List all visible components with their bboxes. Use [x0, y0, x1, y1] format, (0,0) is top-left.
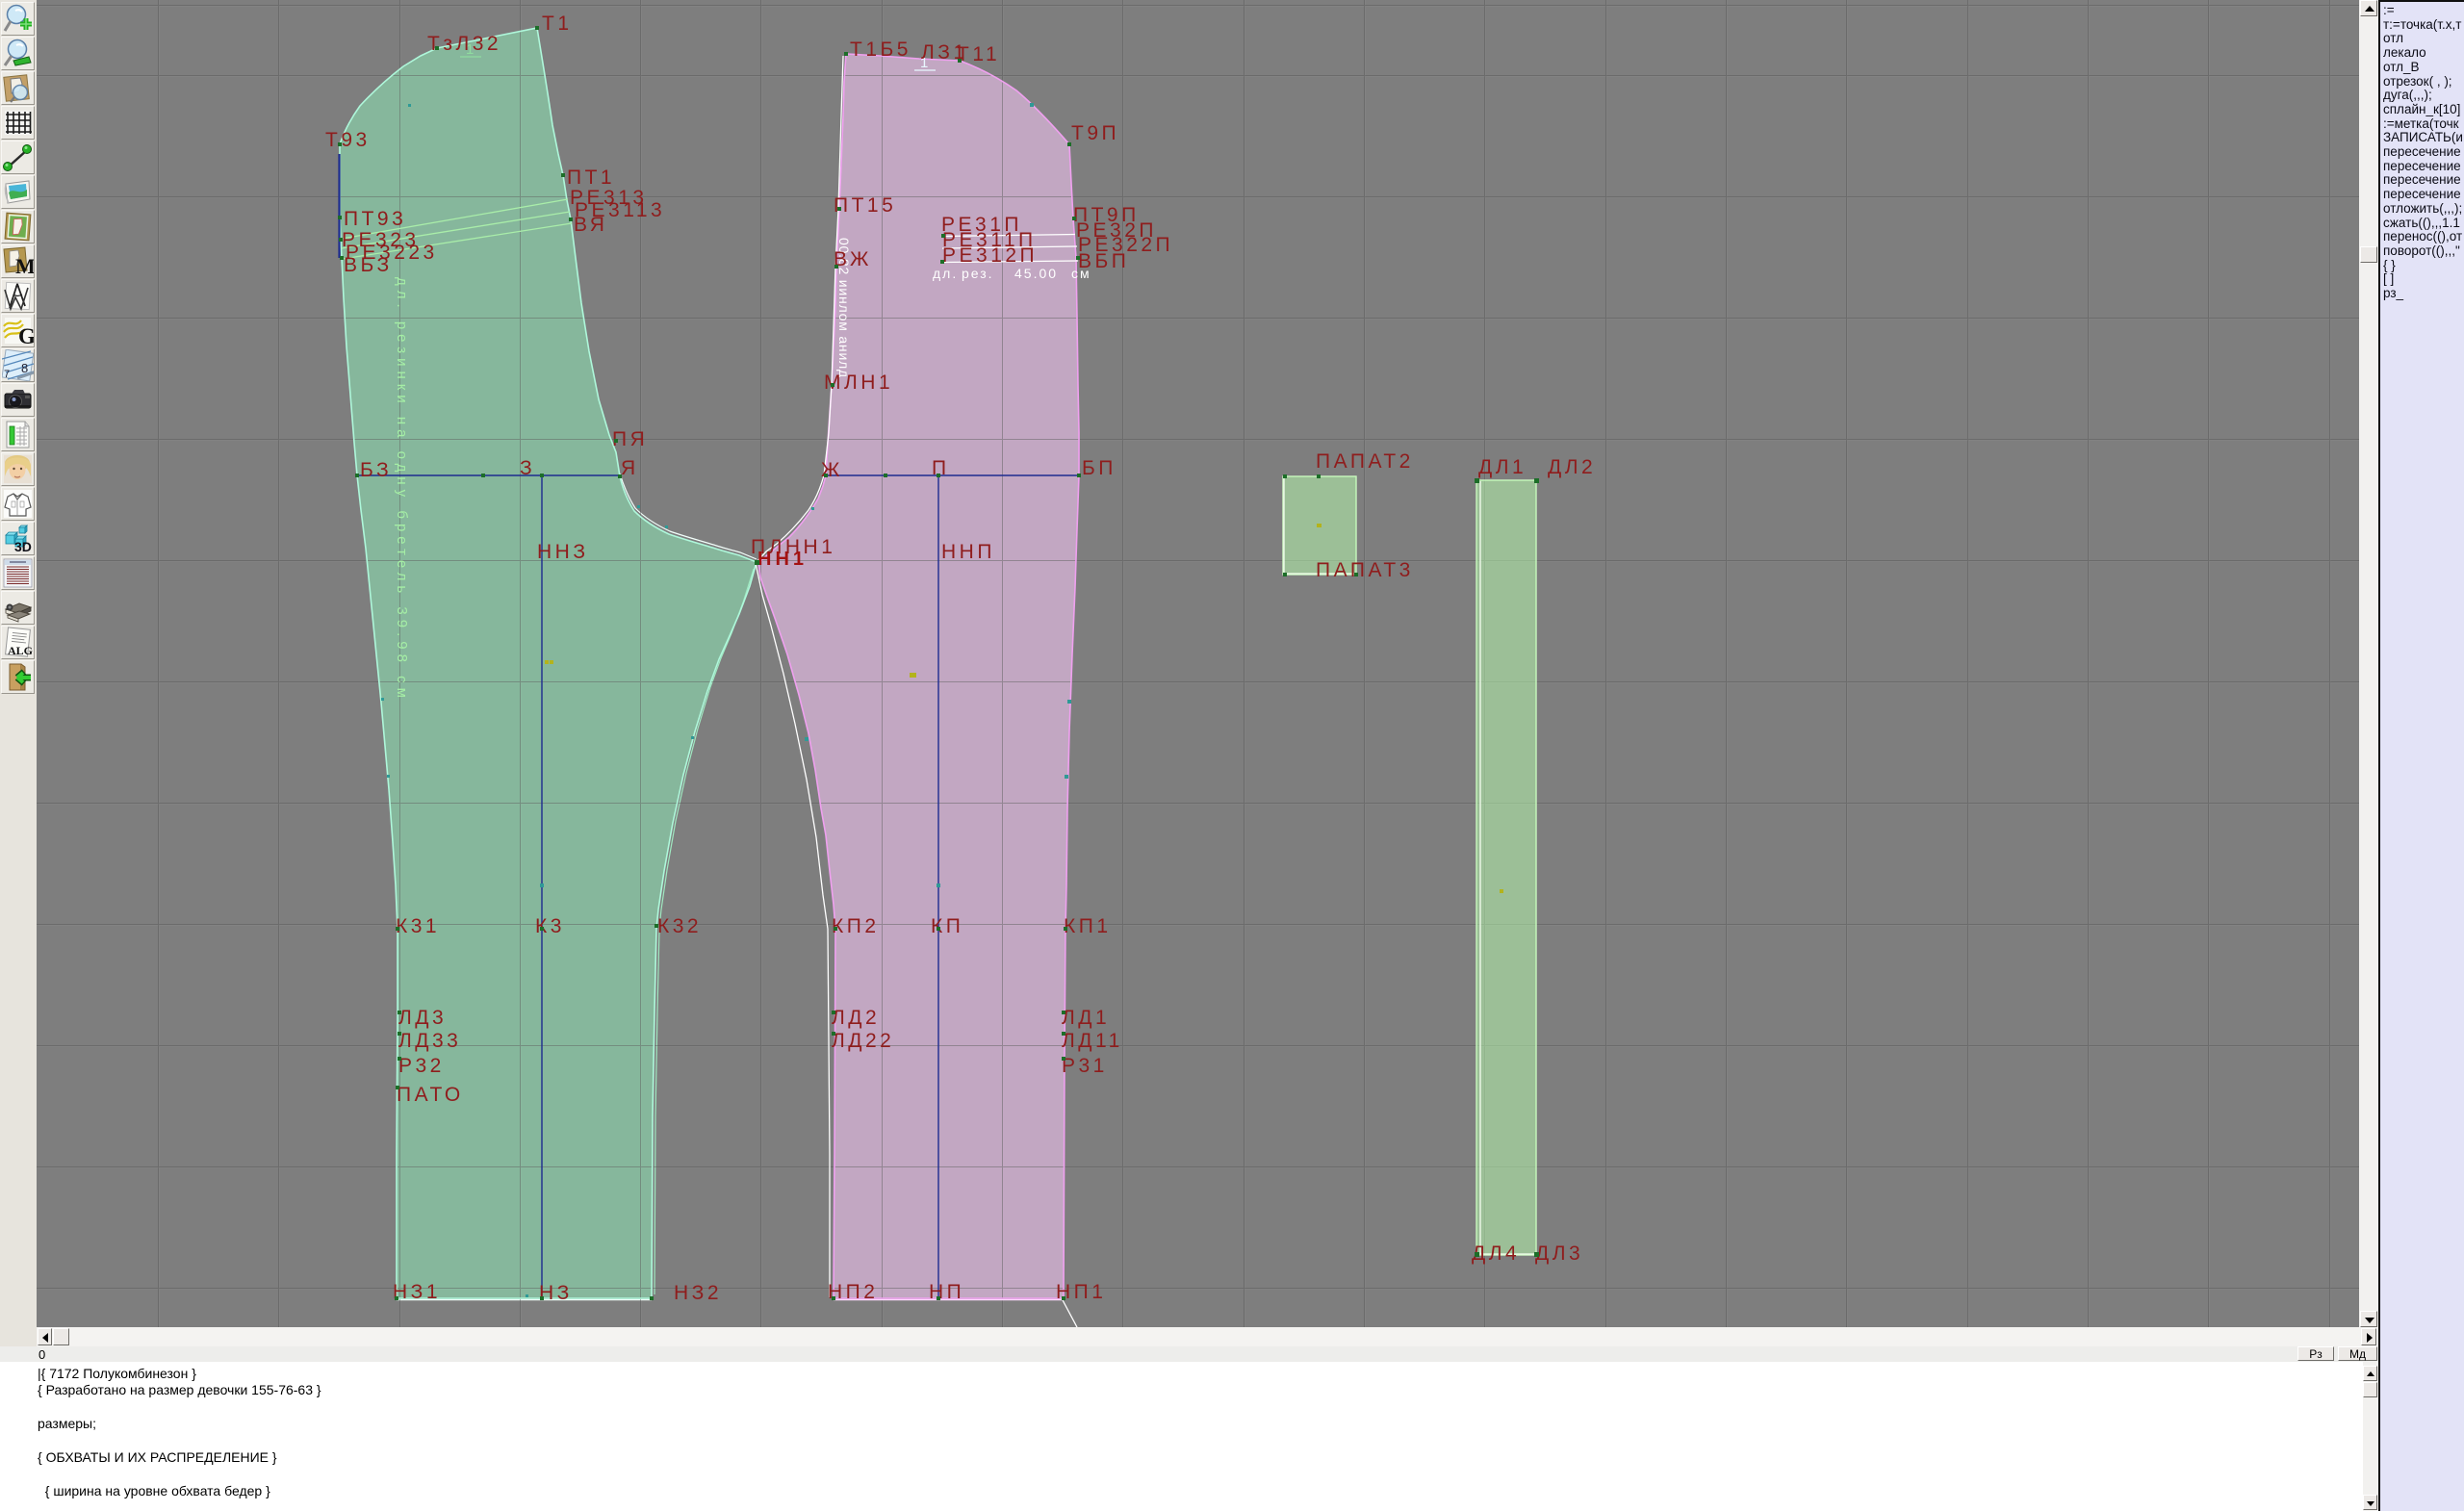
svg-text:ЛД2: ЛД2 — [832, 1007, 880, 1029]
svg-text:ПТ15: ПТ15 — [834, 194, 896, 217]
svg-text:ПТ93: ПТ93 — [344, 208, 406, 230]
svg-text:ПАТО: ПАТО — [397, 1084, 464, 1106]
svg-text:БЗ: БЗ — [360, 459, 392, 481]
svg-text:Т11: Т11 — [957, 43, 1000, 65]
svg-text:ДЛ1: ДЛ1 — [1478, 456, 1527, 478]
svg-text:рез.: рез. — [962, 266, 994, 281]
svg-text:M: M — [15, 254, 34, 277]
svg-text:ЛД11: ЛД11 — [1062, 1030, 1123, 1052]
svg-text:Р32: Р32 — [398, 1055, 445, 1077]
svg-text:НЗ1: НЗ1 — [393, 1281, 441, 1303]
svg-text:Т1Б5: Т1Б5 — [850, 38, 911, 61]
svg-text:К3: К3 — [535, 915, 565, 937]
svg-text:Р31: Р31 — [1062, 1055, 1108, 1077]
svg-text:дл.: дл. — [933, 266, 958, 281]
svg-text:НЗ: НЗ — [539, 1282, 573, 1304]
svg-text:НЗ2: НЗ2 — [674, 1282, 722, 1304]
svg-text:G: G — [18, 324, 34, 346]
svg-text:ПАПАТ3: ПАПАТ3 — [1316, 559, 1414, 581]
svg-text:З: З — [520, 457, 535, 479]
svg-text:К32: К32 — [657, 915, 702, 937]
svg-text:ЛД3: ЛД3 — [398, 1007, 447, 1029]
svg-text:ВЖ: ВЖ — [834, 248, 872, 270]
svg-text:7: 7 — [4, 369, 10, 380]
svg-text:КП: КП — [931, 915, 963, 937]
svg-text:Ж: Ж — [821, 459, 843, 481]
svg-text:Я: Я — [621, 457, 639, 479]
svg-text:МЛН1: МЛН1 — [824, 371, 893, 394]
svg-text:ЛД22: ЛД22 — [832, 1030, 894, 1052]
svg-text:8: 8 — [21, 361, 28, 375]
svg-text:ВБЗ: ВБЗ — [344, 254, 393, 276]
svg-text:45.00: 45.00 — [1014, 266, 1058, 281]
svg-text:КП1: КП1 — [1064, 915, 1112, 937]
svg-text:ДЛ2: ДЛ2 — [1548, 456, 1596, 478]
svg-text:ПАПАТ2: ПАПАТ2 — [1316, 450, 1414, 473]
svg-text:ЛД1: ЛД1 — [1062, 1007, 1110, 1029]
svg-text:ALG: ALG — [8, 644, 33, 657]
svg-text:ПТ1: ПТ1 — [567, 166, 615, 189]
svg-text:Т93: Т93 — [325, 129, 371, 151]
svg-text:дл. резинки на одну бретель 39: дл. резинки на одну бретель 39.98 см — [394, 277, 410, 703]
svg-text:БП: БП — [1082, 457, 1116, 479]
svg-text:ННЗ: ННЗ — [537, 541, 589, 563]
svg-text:К31: К31 — [396, 915, 440, 937]
svg-text:Т9П: Т9П — [1071, 122, 1119, 144]
svg-text:ННП: ННП — [941, 541, 995, 563]
svg-text:НН1: НН1 — [757, 549, 808, 570]
svg-text:ВБП: ВБП — [1078, 250, 1129, 272]
svg-text:ВЯ: ВЯ — [574, 214, 607, 236]
svg-text:ДЛ3: ДЛ3 — [1535, 1242, 1583, 1265]
svg-text:П: П — [932, 457, 950, 479]
svg-text:Т1: Т1 — [542, 13, 573, 35]
svg-text:ТзЛ32: ТзЛ32 — [427, 33, 501, 55]
svg-text:НП: НП — [929, 1281, 964, 1303]
svg-text:ЛД33: ЛД33 — [398, 1030, 461, 1052]
svg-text:3D: 3D — [14, 539, 32, 554]
svg-text:РЕ312П: РЕ312П — [942, 244, 1038, 267]
svg-text:КП2: КП2 — [832, 915, 880, 937]
